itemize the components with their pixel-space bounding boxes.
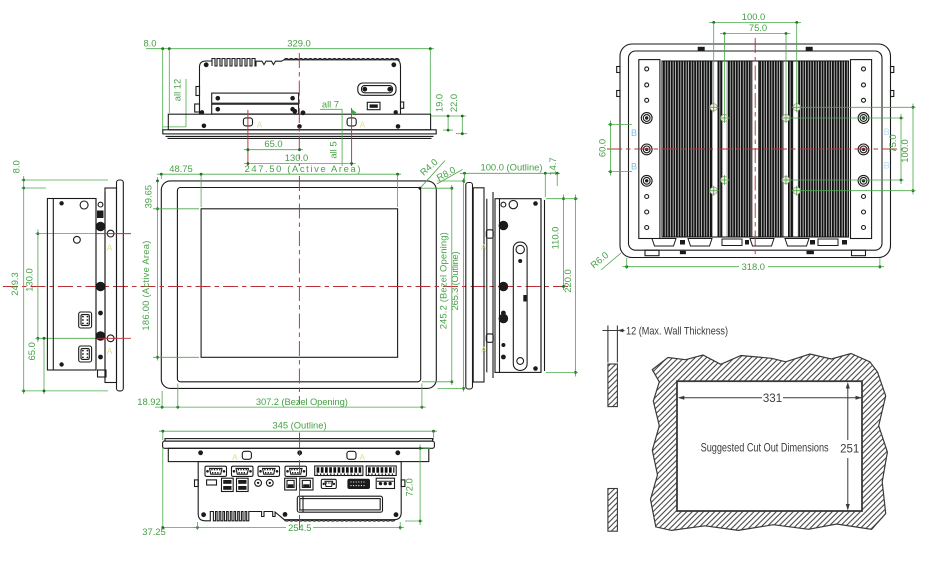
svg-text:254.5: 254.5 bbox=[288, 522, 311, 533]
svg-text:A: A bbox=[107, 347, 113, 356]
svg-text:A: A bbox=[481, 243, 487, 252]
svg-text:100.0: 100.0 bbox=[899, 139, 910, 162]
svg-text:14.7: 14.7 bbox=[547, 157, 558, 175]
svg-text:318.0: 318.0 bbox=[742, 261, 765, 272]
svg-text:all 7: all 7 bbox=[322, 99, 339, 110]
svg-text:A: A bbox=[107, 244, 113, 253]
svg-text:B: B bbox=[631, 162, 637, 172]
svg-text:19.0: 19.0 bbox=[434, 94, 445, 112]
svg-text:B: B bbox=[884, 161, 890, 171]
svg-text:R6.0: R6.0 bbox=[588, 249, 610, 270]
svg-text:18.92: 18.92 bbox=[137, 396, 160, 407]
svg-text:130.0: 130.0 bbox=[23, 268, 34, 291]
svg-text:100.0 (Outline): 100.0 (Outline) bbox=[480, 161, 542, 172]
svg-text:329.0: 329.0 bbox=[287, 38, 310, 49]
svg-text:265.3 (Outline): 265.3 (Outline) bbox=[449, 251, 460, 310]
svg-text:75.0: 75.0 bbox=[887, 134, 898, 152]
svg-text:A: A bbox=[481, 346, 487, 355]
svg-text:A: A bbox=[257, 121, 263, 130]
svg-text:307.2 (Bezel Opening): 307.2 (Bezel Opening) bbox=[256, 396, 348, 407]
svg-text:A: A bbox=[360, 453, 366, 462]
svg-text:48.75: 48.75 bbox=[169, 163, 192, 174]
svg-text:130.0: 130.0 bbox=[285, 152, 308, 163]
svg-text:247.50 (Active Area): 247.50 (Active Area) bbox=[245, 163, 361, 174]
svg-text:186.00 (Active Area): 186.00 (Active Area) bbox=[140, 241, 151, 331]
svg-text:345 (Outline): 345 (Outline) bbox=[272, 420, 326, 431]
svg-text:110.0: 110.0 bbox=[549, 227, 560, 250]
svg-text:39.65: 39.65 bbox=[143, 185, 154, 208]
svg-text:R8.0: R8.0 bbox=[435, 164, 458, 183]
svg-text:Suggested Cut Out Dimensions: Suggested Cut Out Dimensions bbox=[701, 441, 829, 455]
svg-text:8.0: 8.0 bbox=[11, 160, 22, 173]
svg-text:251: 251 bbox=[840, 444, 859, 456]
svg-text:12 (Max. Wall Thickness): 12 (Max. Wall Thickness) bbox=[626, 326, 728, 338]
svg-text:249.3: 249.3 bbox=[9, 272, 20, 295]
svg-text:331: 331 bbox=[763, 393, 782, 405]
svg-text:8.0: 8.0 bbox=[143, 38, 156, 49]
svg-text:65.0: 65.0 bbox=[264, 138, 282, 149]
svg-text:75.0: 75.0 bbox=[749, 22, 767, 33]
svg-text:60.0: 60.0 bbox=[596, 139, 607, 157]
svg-text:220.0: 220.0 bbox=[562, 269, 573, 292]
svg-text:22.0: 22.0 bbox=[448, 94, 459, 112]
svg-text:A: A bbox=[232, 453, 238, 462]
svg-text:all 12: all 12 bbox=[172, 79, 183, 101]
svg-text:all 5: all 5 bbox=[328, 141, 339, 158]
svg-text:37.25: 37.25 bbox=[142, 526, 165, 537]
svg-text:65.0: 65.0 bbox=[26, 342, 37, 360]
svg-text:A: A bbox=[360, 121, 366, 130]
svg-text:245.2 (Bezel Opening): 245.2 (Bezel Opening) bbox=[438, 232, 449, 329]
svg-text:72.0: 72.0 bbox=[404, 478, 415, 496]
svg-text:B: B bbox=[631, 128, 637, 138]
svg-text:100.0: 100.0 bbox=[742, 11, 765, 22]
